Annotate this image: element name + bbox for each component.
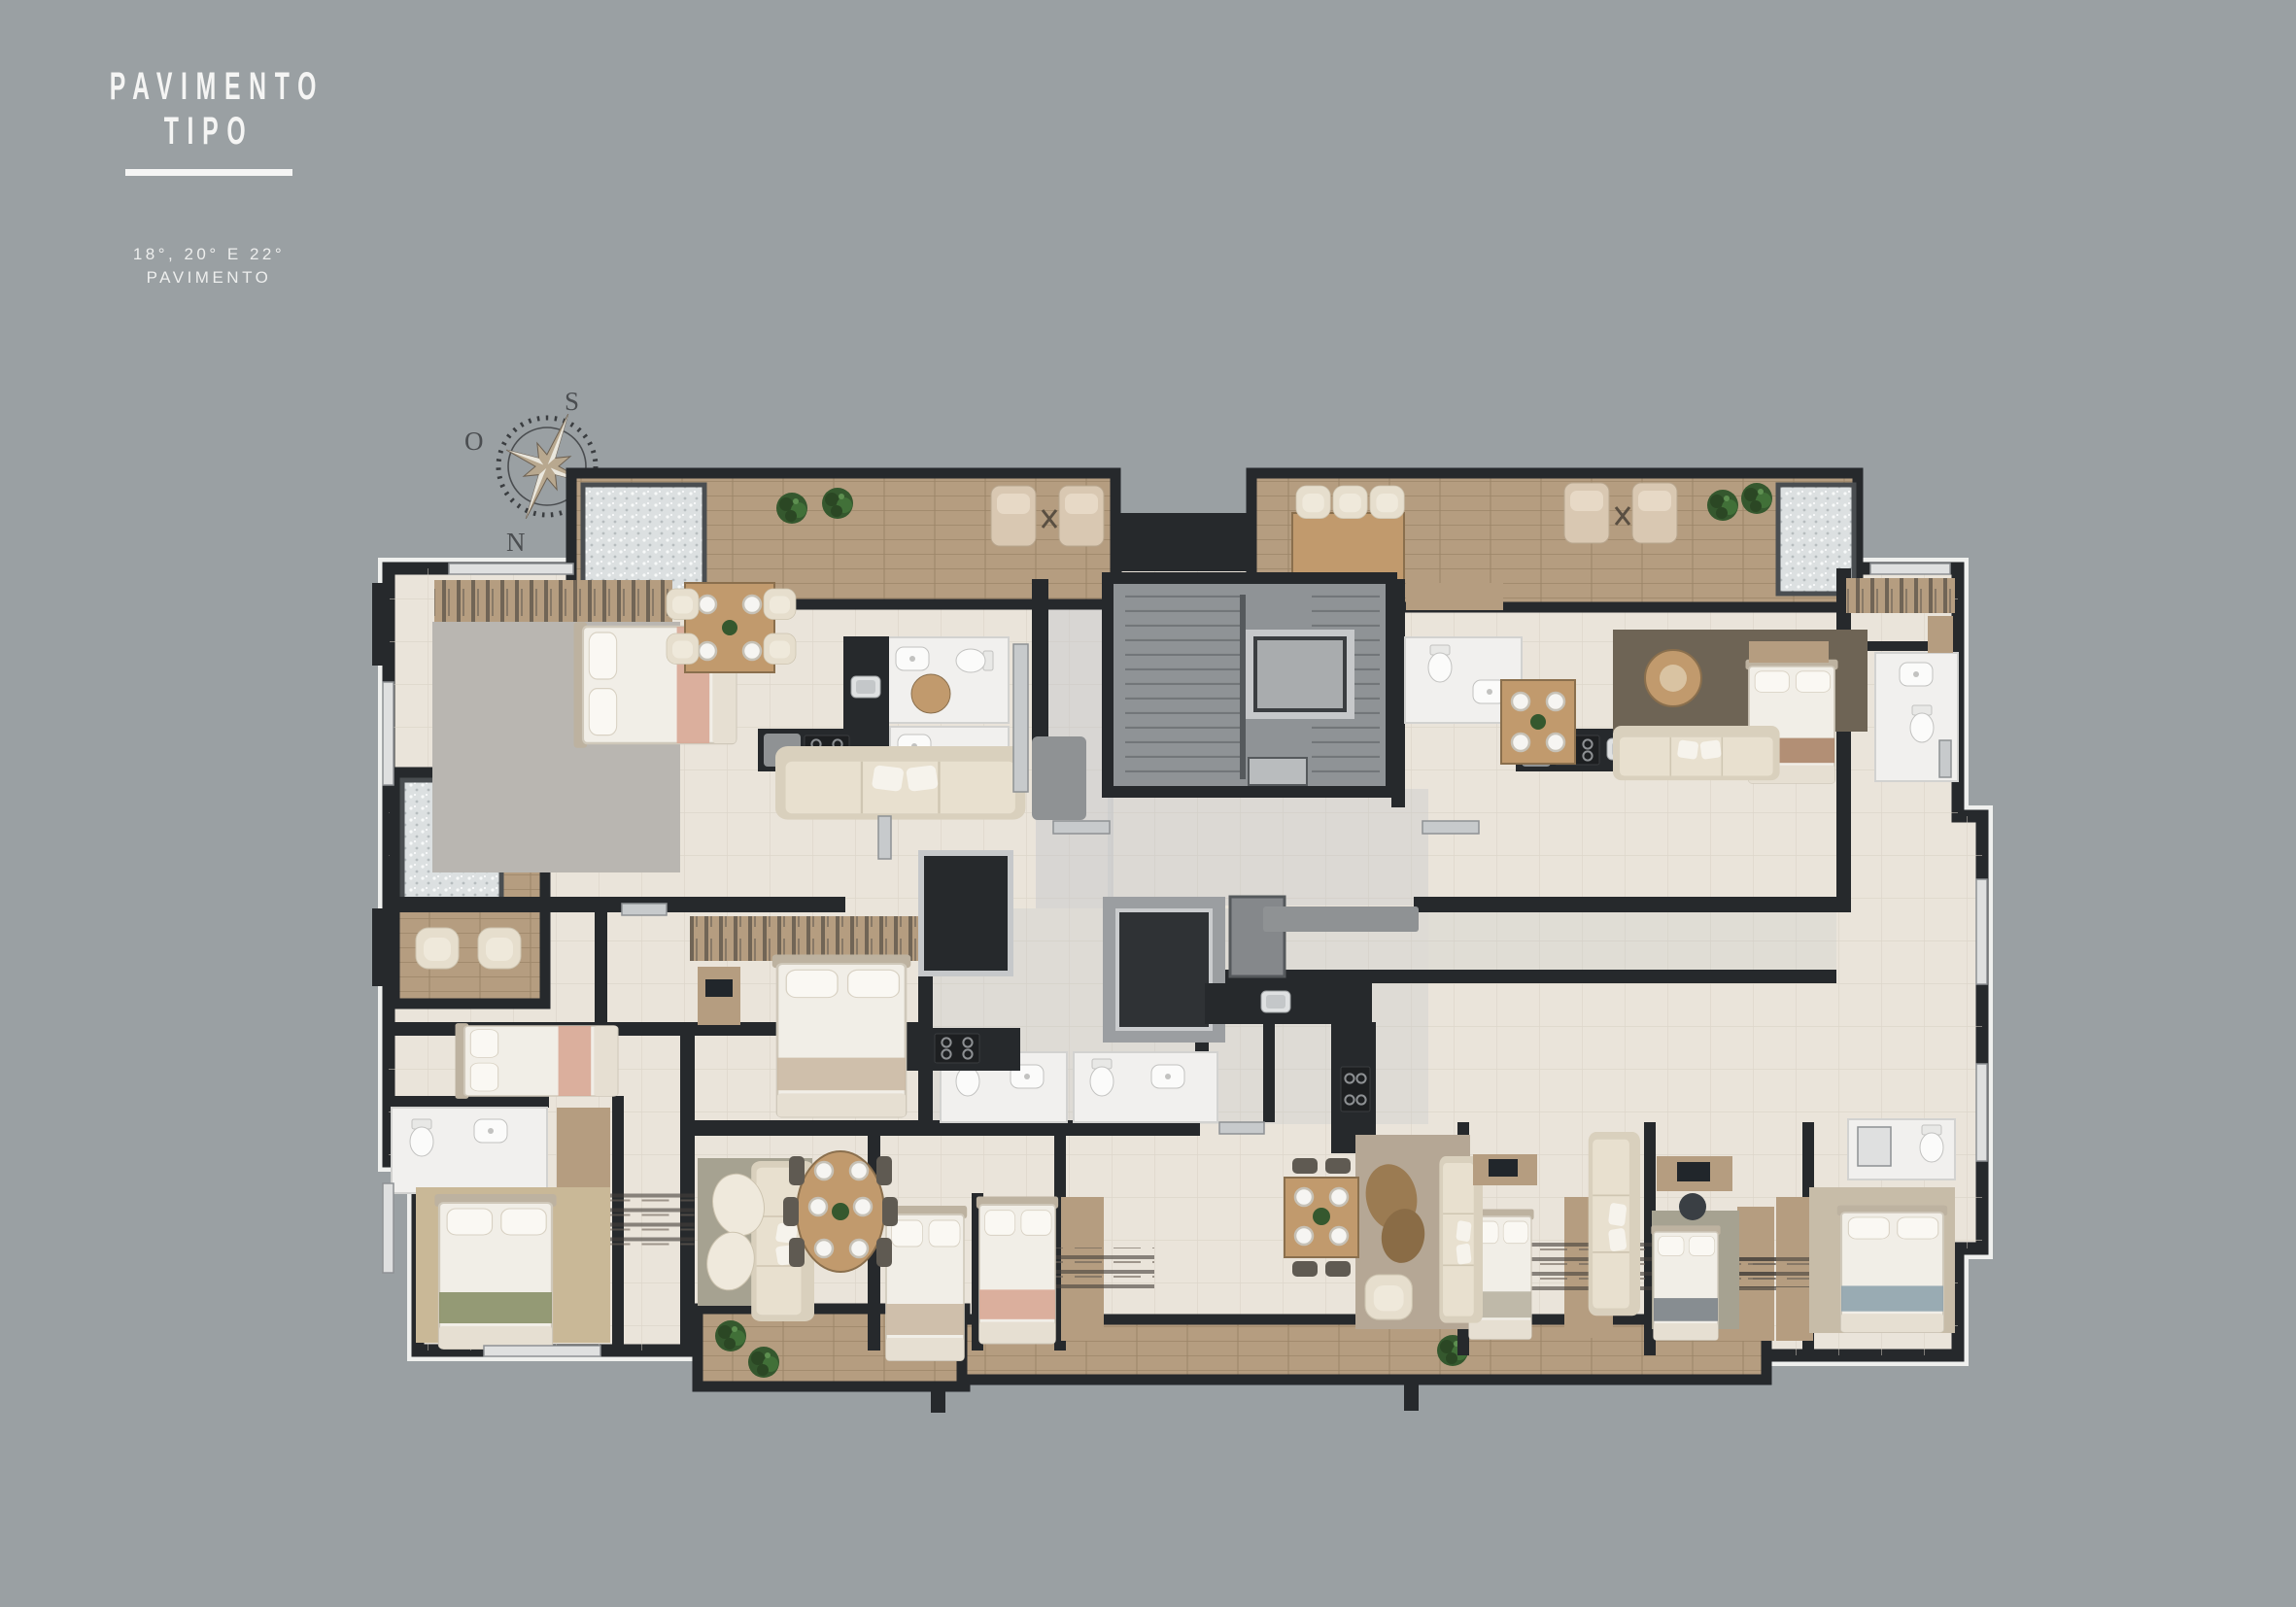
plant-icon <box>748 1347 779 1378</box>
wall-stub <box>1404 1378 1419 1411</box>
glass-floor-panel <box>583 485 704 593</box>
lounge-chair <box>991 486 1036 546</box>
sofa <box>775 746 1025 820</box>
corner-sofa <box>1589 1132 1640 1316</box>
floor-plan: S O L N <box>321 369 2011 1428</box>
closet <box>1846 578 1955 613</box>
compass-label-o: O <box>464 427 484 456</box>
lounge-chair <box>1059 486 1104 546</box>
wall-stub <box>372 908 390 986</box>
desk <box>1473 1154 1537 1185</box>
bed <box>883 1206 967 1360</box>
dining-table-oval <box>783 1151 898 1272</box>
floor-subtitle: 18°, 20° E 22° PAVIMENTO <box>49 243 369 290</box>
closet <box>434 580 672 623</box>
bed <box>977 1196 1058 1343</box>
entry-console <box>1406 583 1503 610</box>
title-divider <box>125 169 292 176</box>
office-chair <box>1679 1193 1706 1220</box>
core-elevator <box>1246 630 1354 719</box>
plant-icon <box>1741 483 1772 514</box>
bathroom <box>392 1108 547 1193</box>
title-block: PAVIMENTO TIPO <box>49 64 369 176</box>
bed <box>434 1194 556 1349</box>
plant-icon <box>822 488 853 519</box>
page: PAVIMENTO TIPO 18°, 20° E 22° PAVIMENTO <box>0 0 2296 1607</box>
compass-label-n: N <box>506 528 526 557</box>
plant-icon <box>776 493 807 524</box>
armchair <box>1365 1275 1412 1319</box>
lounge-chair <box>1632 483 1677 543</box>
bed <box>772 955 911 1117</box>
bed <box>1837 1206 1947 1332</box>
stair-core <box>1108 578 1391 792</box>
sofa <box>1613 726 1780 780</box>
page-title-line1: PAVIMENTO <box>110 64 309 109</box>
elevator-shaft <box>921 853 1011 974</box>
shoe-shelf <box>1928 616 1953 653</box>
page-title-line2: TIPO <box>110 109 309 154</box>
hall-console <box>1263 906 1419 932</box>
balcony-chair <box>416 928 459 969</box>
floor-subtitle-line1: 18°, 20° E 22° <box>49 243 369 266</box>
bed <box>456 1023 618 1099</box>
dining-table <box>1501 680 1575 764</box>
floor-subtitle-line2: PAVIMENTO <box>49 266 369 290</box>
balcony-chair <box>478 928 521 969</box>
bathroom <box>1848 1119 1955 1180</box>
plant-icon <box>715 1320 746 1351</box>
wall-stub <box>372 583 390 666</box>
plant-icon <box>1707 490 1738 521</box>
wall-stub <box>931 1384 945 1413</box>
desk <box>698 967 740 1025</box>
bed <box>1651 1225 1720 1340</box>
bathroom <box>1074 1052 1217 1122</box>
coffee-table <box>911 674 950 713</box>
ottoman <box>1032 736 1086 820</box>
compass-label-s: S <box>565 387 579 416</box>
round-table <box>1645 650 1701 706</box>
closet <box>690 916 918 961</box>
bathroom <box>887 637 1009 723</box>
lounge-chair <box>1564 483 1609 543</box>
headboard-shelf <box>1749 641 1829 663</box>
bathroom <box>1875 653 1958 781</box>
